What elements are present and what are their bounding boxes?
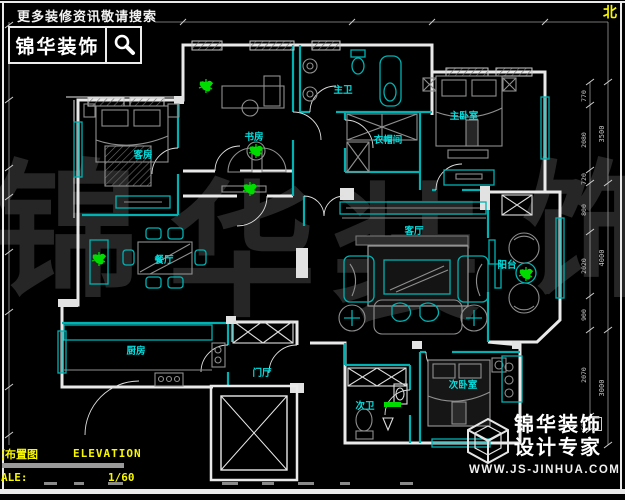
room-label-foyer: 门厅 xyxy=(252,367,272,379)
room-label-kitchen: 厨房 xyxy=(126,345,145,357)
frame-border-right xyxy=(620,1,622,493)
footer-website: WWW.JS-JINHUA.COM xyxy=(469,464,620,476)
room-label-second-bedroom: 次卧室 xyxy=(449,379,478,391)
dim-right-6: 900 xyxy=(580,309,588,321)
room-label-second-bath: 次卫 xyxy=(355,400,375,412)
dim-outer-1: 3500 xyxy=(598,126,606,143)
title-underline-bar xyxy=(2,463,124,468)
drawing-title-cn: 面布置图 xyxy=(2,446,40,461)
room-label-balcony: 阳台 xyxy=(497,259,517,271)
frame-border-top xyxy=(0,1,625,3)
elevator-shaft xyxy=(211,386,297,480)
drawing-title-en: ELEVATION xyxy=(73,447,142,460)
room-label-master-bath: 主卫 xyxy=(333,84,353,96)
room-label-study: 书房 xyxy=(244,131,263,143)
master-bath-fixtures xyxy=(303,50,401,106)
footer-brand-tagline: 设计专家 xyxy=(514,437,602,460)
second-bedroom-furniture xyxy=(428,356,522,426)
dim-outer-2: 4000 xyxy=(598,250,606,267)
frame-border-left xyxy=(2,1,4,493)
room-label-master-bedroom: 主卧室 xyxy=(450,110,479,122)
footer-brand-name: 锦华装饰 xyxy=(514,414,602,437)
balcony-furniture xyxy=(502,195,539,313)
search-icon xyxy=(107,28,140,62)
room-label-dining: 餐厅 xyxy=(153,254,174,266)
living-room-furniture xyxy=(339,202,488,334)
trademark-box xyxy=(592,417,602,431)
dimension-values: 770 2080 720 800 2020 900 2070 600 3500 … xyxy=(580,90,606,431)
dining-furniture xyxy=(90,228,206,288)
frame-border-bottom xyxy=(0,489,625,494)
room-label-closet: 衣帽间 xyxy=(374,134,403,146)
cad-canvas: 锦 华 装 饰 xyxy=(0,0,625,500)
header-tagline: 更多装修资讯敬请搜索 xyxy=(17,6,157,25)
dim-outer-3: 3000 xyxy=(598,380,606,397)
dim-right-5: 2020 xyxy=(580,258,588,274)
room-label-guest-room: 客房 xyxy=(132,149,152,161)
bottom-dim-marks xyxy=(44,482,413,485)
brand-name: 锦华装饰 xyxy=(10,28,105,62)
footer-brand-text: 锦华装饰 设计专家 xyxy=(514,414,602,460)
dim-right-3: 720 xyxy=(580,173,588,185)
dim-right-7: 2070 xyxy=(580,367,588,383)
cube-logo-icon xyxy=(464,418,512,464)
foyer-cabinet xyxy=(233,321,293,343)
dim-right-1: 770 xyxy=(580,90,588,102)
dim-right-2: 2080 xyxy=(580,132,588,148)
scale-value: 1/60 xyxy=(108,471,135,484)
dim-right-4: 800 xyxy=(580,204,588,216)
room-label-living: 客厅 xyxy=(403,225,424,237)
north-indicator: 北 xyxy=(603,2,617,22)
header-brand-box: 锦华装饰 xyxy=(8,26,142,64)
master-bedroom-furniture xyxy=(423,76,516,185)
scale-label: ALE: xyxy=(1,471,28,484)
guest-room-furniture xyxy=(84,104,179,208)
